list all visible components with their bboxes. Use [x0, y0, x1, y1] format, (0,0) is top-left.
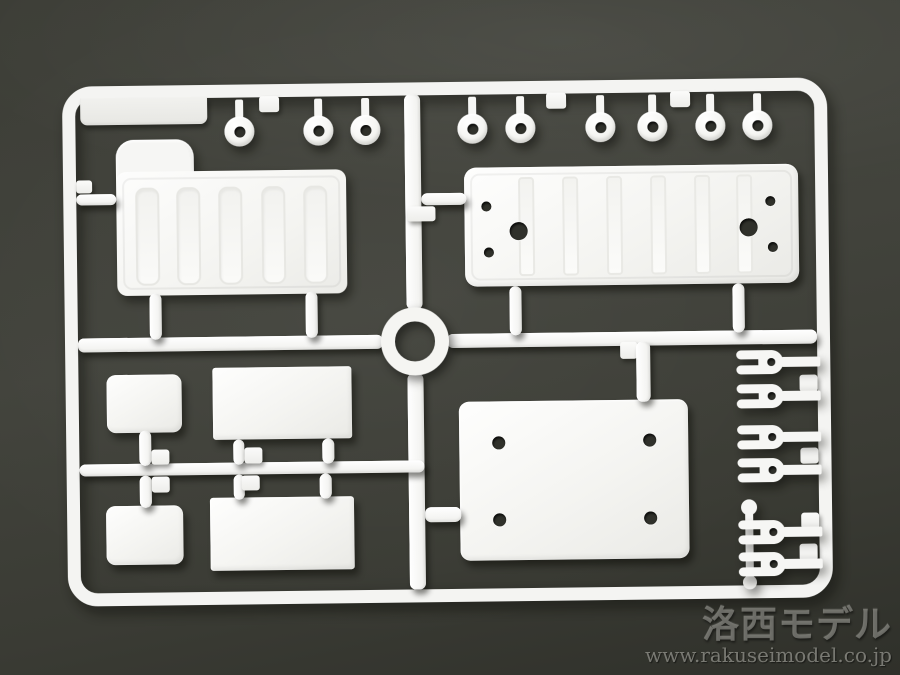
plate-hole [765, 196, 775, 206]
rail-tab [546, 93, 566, 109]
fork-gate-stem [783, 526, 822, 536]
fork-part [739, 551, 823, 576]
gate-stem [636, 342, 651, 402]
plate-hole [643, 433, 656, 446]
fork-part [737, 424, 821, 449]
plate-hole [493, 513, 506, 526]
fork-hole [769, 466, 777, 474]
ring-part [695, 94, 726, 142]
fork-part [737, 383, 821, 408]
ring-part [457, 97, 488, 145]
plate-rib-strip [606, 176, 623, 275]
plate-hole [492, 436, 505, 449]
rail-tab [259, 96, 279, 112]
ring-hole [467, 124, 478, 135]
plate-rib-strip [650, 175, 667, 274]
gate-stem [322, 438, 334, 463]
ring-part [585, 95, 616, 143]
rail-tab [670, 91, 690, 107]
rounded-box-part-a [106, 374, 182, 433]
fork-gate-stem [784, 558, 823, 568]
gate-tab-left [76, 180, 92, 193]
ring-part [303, 98, 334, 146]
fork-hole [768, 392, 776, 400]
runner-vertical-top [404, 94, 423, 309]
fork-gate-stem [782, 390, 821, 400]
gate-arm [425, 507, 461, 522]
fork-hole [769, 528, 777, 536]
gate-tab [407, 206, 435, 221]
runner-pad [242, 475, 260, 490]
panel-rib-slot [261, 186, 286, 284]
molded-label-tab [80, 97, 207, 126]
fork-part [737, 457, 821, 482]
fork-gate-stem [781, 356, 820, 366]
gate-stem [140, 476, 152, 508]
ring-part [637, 94, 668, 142]
gate-arm-left [76, 194, 116, 205]
plate-hole [644, 511, 657, 524]
fork-hole [767, 358, 775, 366]
plastic-sprue [0, 0, 900, 675]
plate-rib-strip [562, 176, 579, 275]
gate-stem [233, 440, 244, 465]
runner-pad [151, 449, 169, 464]
photo-background: 洛西モデル www.rakuseimodel.co.jp [0, 0, 900, 675]
flat-rect-part-d [210, 496, 355, 571]
ring-part [224, 99, 255, 147]
gate-arm [421, 193, 466, 206]
gate-stem [305, 292, 318, 338]
panel-rib-slot [135, 188, 160, 286]
gate-stem [509, 286, 522, 335]
gate-stem [149, 294, 162, 340]
ring-part [505, 96, 536, 144]
panel-rib-slot [303, 185, 328, 283]
fork-gate-stem [782, 431, 821, 441]
ring-hole [234, 126, 245, 137]
fork-part [738, 519, 822, 544]
ring-hole [360, 125, 371, 136]
flat-rect-part-b [212, 366, 352, 440]
support-rod-ball [741, 499, 757, 515]
panel-rib-slot [176, 187, 201, 285]
ring-hole [647, 121, 658, 132]
rounded-box-part-c [106, 505, 184, 565]
ring-hole [752, 120, 763, 131]
slotted-plate-part [464, 164, 799, 287]
plate-hole [481, 201, 491, 211]
ribbed-panel-body [116, 169, 347, 296]
fork-hole [770, 560, 778, 568]
runner-pad [152, 476, 170, 492]
ring-hole [705, 121, 716, 132]
support-rod-ball [743, 575, 757, 589]
ring-part [742, 93, 773, 141]
fork-part [736, 349, 820, 374]
mounting-plate-part [459, 399, 690, 561]
runner-vertical-bottom [407, 373, 426, 589]
runner-pad [244, 447, 262, 463]
gate-stem [320, 473, 332, 498]
plate-hole [740, 218, 758, 236]
ring-hole [595, 122, 606, 133]
gate-stem [139, 431, 151, 466]
ring-hole [313, 126, 324, 137]
gate-elbow [620, 342, 637, 359]
panel-rib-slot [218, 187, 243, 285]
plate-hole [484, 247, 494, 257]
gate-stem [732, 283, 745, 332]
plate-rib-strip [694, 175, 711, 274]
plate-hole [768, 242, 778, 252]
plate-hole [510, 222, 528, 240]
fork-gate-stem [783, 464, 822, 474]
fork-hole [768, 433, 776, 441]
ring-hole [515, 123, 526, 134]
ring-part [350, 98, 381, 146]
